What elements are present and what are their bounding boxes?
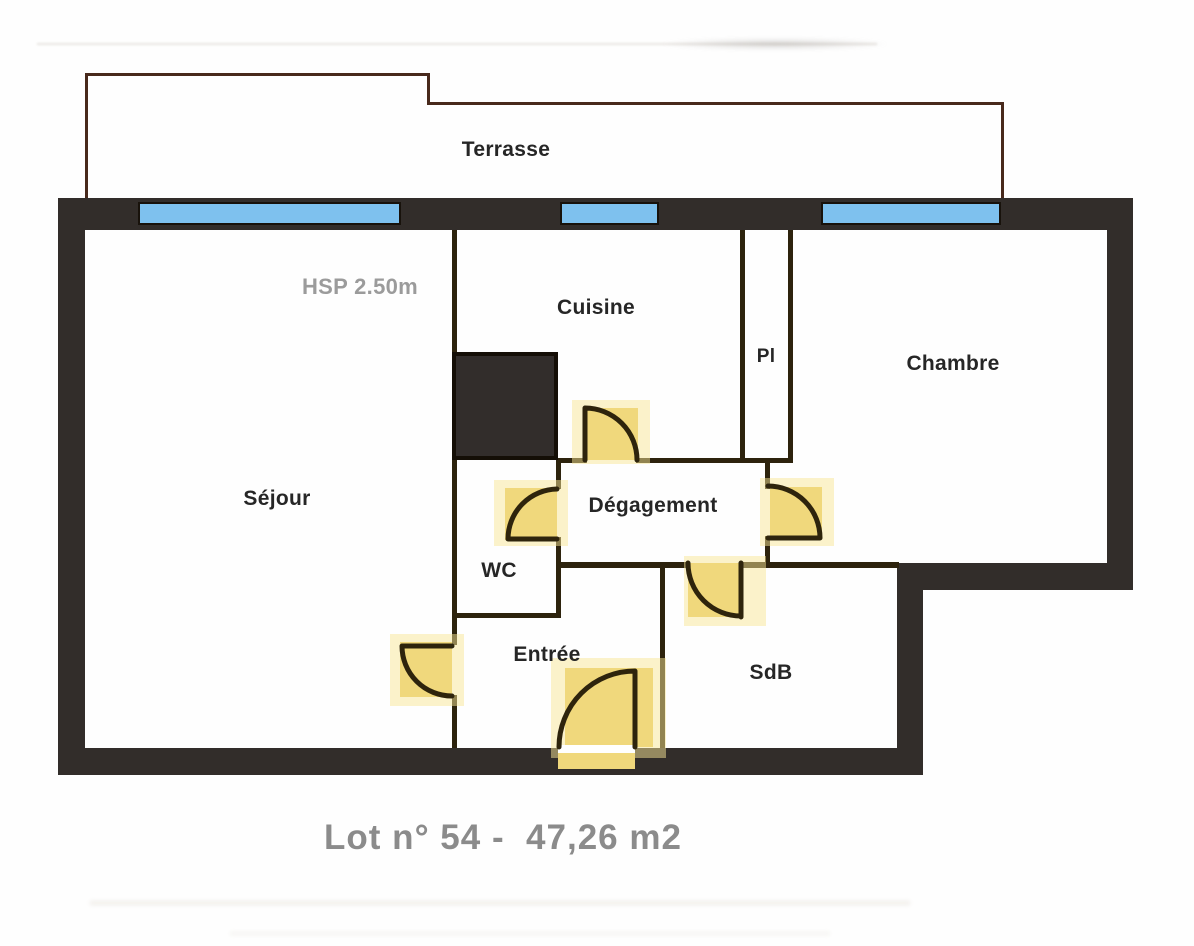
- terrace-outline-top-right: [427, 102, 1004, 105]
- partition-wc-bottom: [452, 613, 561, 618]
- door-pad-wc: [505, 488, 557, 540]
- room-label-degagement: Dégagement: [588, 494, 717, 518]
- door-pad-entree: [565, 668, 653, 747]
- room-label-cuisine: Cuisine: [557, 296, 635, 320]
- room-label-sdb: SdB: [750, 661, 793, 685]
- partition-cuisine-bottom-right: [636, 458, 742, 463]
- door-pad-sdb: [688, 563, 741, 617]
- partition-degagement-bottom-left: [556, 562, 690, 568]
- room-label-entree: Entrée: [513, 643, 580, 667]
- wall-left: [58, 198, 85, 775]
- partition-sejour-cuisine: [452, 230, 457, 354]
- terrace-outline-right: [1001, 102, 1004, 198]
- ceiling-height-note: HSP 2.50m: [302, 274, 418, 300]
- scan-artifact-bottom-streak-1: [90, 901, 910, 905]
- wall-right-upper: [1107, 198, 1133, 590]
- scan-artifact-bottom-streak-2: [230, 932, 830, 935]
- partition-pl-left: [740, 230, 745, 462]
- room-label-sejour: Séjour: [243, 487, 310, 511]
- entrance-threshold-white: [558, 745, 635, 753]
- window-sejour: [138, 202, 401, 225]
- door-pad-cuisine: [585, 408, 638, 460]
- door-pad-chambre: [770, 487, 822, 539]
- wall-bottom: [58, 748, 923, 775]
- scan-artifact-top-smudge: [660, 38, 890, 50]
- terrace-outline-left: [85, 73, 88, 198]
- room-label-wc: WC: [481, 559, 517, 583]
- room-label-terrasse: Terrasse: [462, 138, 550, 162]
- partition-wc-degagement-lower: [556, 537, 561, 617]
- entrance-threshold-pad: [558, 753, 635, 769]
- kitchen-block: [452, 352, 558, 460]
- window-cuisine: [560, 202, 659, 225]
- scan-artifact-top-line: [37, 43, 877, 45]
- floor-plan: Terrasse HSP 2.50m Cuisine Pl Chambre Sé…: [0, 0, 1194, 946]
- terrace-outline-top-left: [85, 73, 430, 76]
- room-label-pl: Pl: [757, 346, 776, 368]
- wall-sdb-right: [897, 563, 923, 775]
- partition-pl-right: [788, 230, 793, 462]
- window-chambre: [821, 202, 1001, 225]
- room-label-chambre: Chambre: [906, 352, 999, 376]
- door-pad-sejour: [400, 642, 452, 697]
- lot-caption: Lot n° 54 - 47,26 m2: [324, 818, 682, 858]
- wall-chambre-bottom: [897, 563, 1133, 590]
- door-swings: [0, 0, 1194, 946]
- terrace-outline-step: [427, 73, 430, 105]
